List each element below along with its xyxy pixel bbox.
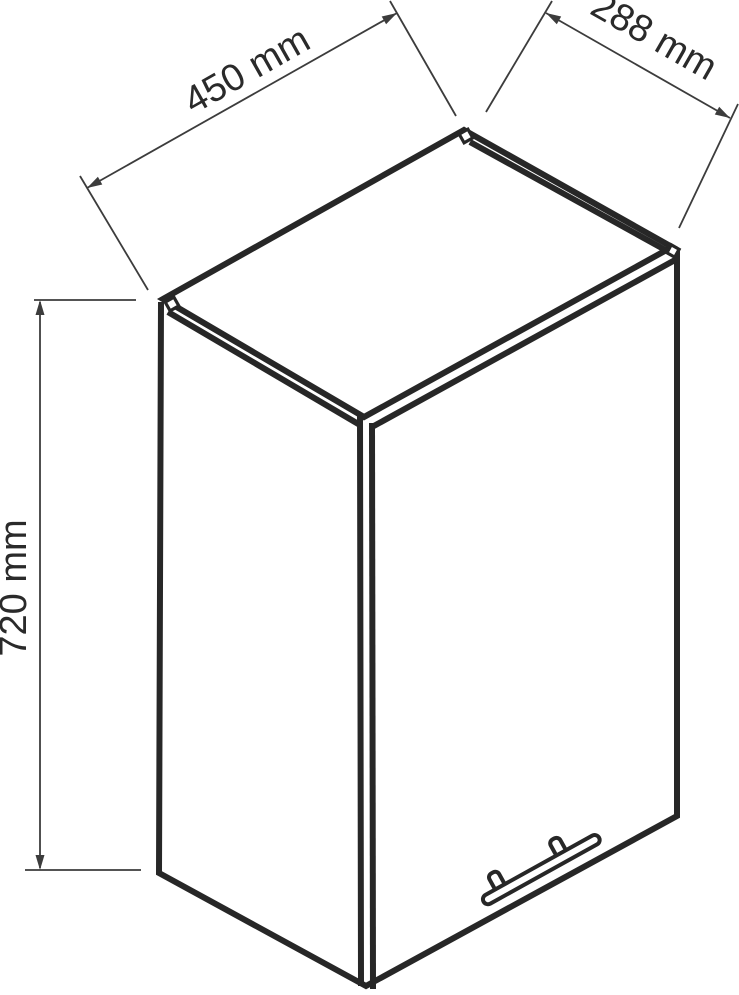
width-dimension-line: [87, 13, 397, 188]
door-edge-verticals: [360, 419, 373, 986]
door-edge-outer-line: [360, 419, 361, 983]
depth-extension-line: [679, 104, 738, 228]
width-arrowhead: [87, 177, 102, 188]
height-dimension-label: 720 mm: [0, 519, 35, 656]
height-arrowhead: [36, 855, 45, 870]
width-arrowhead: [382, 13, 397, 24]
width-extension-line: [390, 1, 456, 116]
diagram-canvas: 450 mm 288 mm 720 mm: [0, 0, 739, 995]
cabinet-dimension-diagram: 450 mm 288 mm 720 mm: [0, 0, 739, 995]
width-extension-line: [80, 176, 148, 290]
depth-arrowhead: [546, 13, 561, 24]
panel-corner-notch-left: [165, 297, 179, 311]
door-edge-inner-line: [372, 426, 373, 986]
dimension-height: 720 mm: [0, 300, 141, 870]
depth-extension-line: [486, 1, 552, 112]
height-arrowhead: [36, 300, 45, 315]
cabinet-top-face: [163, 130, 672, 417]
cabinet-drawing: [159, 129, 679, 986]
depth-arrowhead: [715, 107, 730, 118]
